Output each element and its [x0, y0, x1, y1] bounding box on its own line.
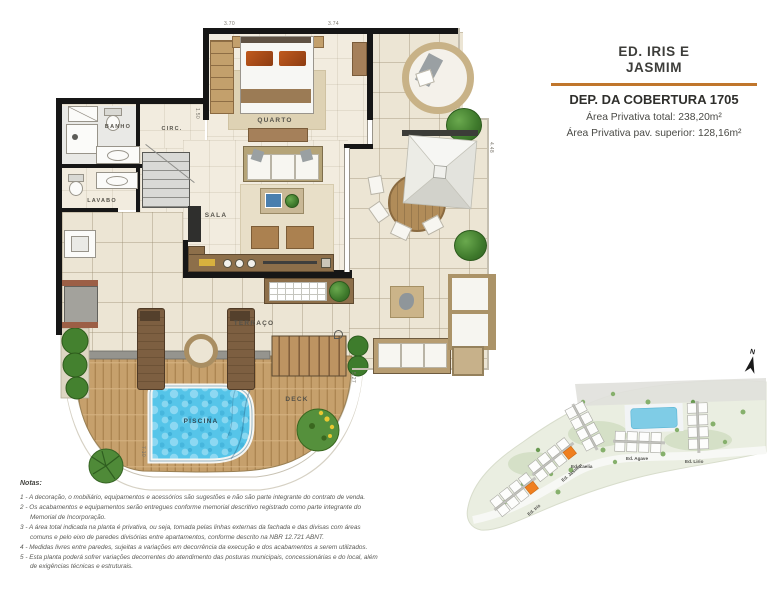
grill	[64, 286, 98, 324]
terrace-decor	[390, 286, 424, 318]
notes-heading: Notas:	[20, 480, 378, 487]
bed	[240, 36, 314, 114]
outdoor-sink-basin	[71, 236, 89, 252]
floorplan-page: QUARTO BANHO CIRC. LAVABO SALA TERRAÇO D…	[0, 0, 768, 614]
grill-brick-bottom	[62, 322, 98, 328]
sofa-cushion	[271, 154, 295, 180]
window-sala-right	[344, 148, 350, 272]
outdoor-armchair	[448, 274, 496, 314]
lavabo-sink-counter	[96, 172, 138, 189]
building-label-lirio: Ed. Lirio	[685, 459, 704, 464]
table-plant	[285, 194, 299, 208]
dimension-label: 3.74	[328, 21, 339, 27]
wall-lavabo-bottom	[56, 208, 118, 212]
bedroom-cabinet	[352, 42, 367, 76]
area-total: Área Privativa total: 238,20m²	[540, 110, 768, 125]
building-name-line1: ED. IRIS E	[540, 44, 768, 60]
banho-sink	[107, 150, 129, 161]
bed-headboard	[241, 37, 311, 43]
wardrobe	[210, 40, 234, 114]
outdoor-sofa	[373, 338, 451, 374]
garden-table-top	[269, 282, 327, 301]
burner	[247, 259, 256, 268]
notes-section: Notas: 1 - A decoração, o mobiliário, eq…	[20, 480, 378, 572]
round-daybed	[402, 42, 474, 114]
wall-banho-lavabo	[56, 164, 142, 168]
room-label-piscina: PISCINA	[168, 418, 234, 425]
bush	[63, 353, 87, 377]
room-label-banho: BANHO	[98, 124, 138, 130]
dining-chair	[368, 175, 385, 195]
cooktop	[199, 259, 215, 266]
bed-pillow	[246, 51, 273, 66]
banho-sink-counter	[96, 146, 140, 164]
lounger-headrest	[140, 311, 160, 321]
outdoor-sofa-cushion	[378, 343, 401, 368]
north-label: N	[749, 349, 755, 357]
table-art	[265, 193, 282, 208]
bed-runner	[241, 89, 311, 103]
deck-steps	[272, 336, 346, 376]
decor-object	[399, 293, 414, 310]
room-label-deck: DECK	[272, 396, 322, 403]
room-label-sala: SALA	[196, 212, 236, 219]
pouf	[251, 226, 279, 249]
garden-table-plant	[329, 281, 350, 302]
shower-head	[72, 134, 78, 140]
counter-sink	[263, 261, 317, 264]
dimension-label: 5.27	[350, 372, 356, 383]
bedroom-dresser	[248, 128, 308, 142]
burner	[235, 259, 244, 268]
dimension-label: 4.48	[488, 142, 494, 153]
side-table-round	[184, 334, 218, 368]
umbrella-canopy	[403, 135, 477, 209]
bush	[62, 328, 88, 354]
tree	[454, 230, 487, 261]
unit-title: DEP. DA COBERTURA 1705	[540, 92, 768, 107]
accent-rule	[551, 83, 757, 86]
garden-table	[264, 278, 354, 304]
bush	[348, 336, 368, 356]
wall-top	[203, 28, 458, 34]
shower	[66, 124, 98, 154]
north-arrow-icon: N	[745, 348, 760, 374]
wall-quarto-right	[367, 28, 373, 120]
counter-item	[321, 258, 331, 268]
lavabo-sink	[106, 176, 128, 186]
note-item: 3 - A área total indicada na planta é pr…	[20, 523, 378, 543]
building-cluster-agave	[613, 431, 666, 453]
bed-pillow	[279, 51, 306, 66]
coffee-table	[260, 188, 304, 214]
outdoor-sink	[64, 230, 96, 258]
outdoor-sofa-cushion	[424, 343, 447, 368]
building-name-line2: JASMIM	[540, 60, 768, 76]
room-label-terraco: TERRAÇO	[222, 320, 286, 327]
umbrella	[392, 124, 488, 216]
sofa	[243, 146, 323, 182]
pouf	[286, 226, 314, 249]
dimension-label: 3.70	[224, 21, 235, 27]
sun-lounger	[137, 308, 165, 390]
palm-plant	[89, 449, 123, 483]
area-upper: Área Privativa pav. superior: 128,16m²	[540, 126, 768, 141]
stairs	[142, 152, 190, 208]
wall-banho-top	[56, 98, 209, 104]
room-label-circ: CIRC.	[152, 126, 192, 132]
burner	[223, 259, 232, 268]
bush	[66, 377, 88, 399]
kitchen-counter	[188, 254, 334, 272]
note-item: 1 - A decoração, o mobiliário, equipamen…	[20, 493, 378, 503]
building-label-laelia: Ed. Laelia	[571, 464, 593, 469]
building-label-agave: Ed. Agave	[626, 456, 648, 461]
note-item: 5 - Esta planta poderá sofrer variações …	[20, 553, 378, 573]
site-plan: Ed. Iris Ed. Jasmim Ed. Laelia Ed. Agave…	[463, 342, 768, 552]
building-cluster-lirio	[687, 401, 709, 454]
deck-flower-bush	[297, 409, 339, 451]
room-label-lavabo: LAVABO	[80, 198, 124, 204]
dimension-label: 1.50	[194, 108, 200, 119]
umbrella-support-beam	[402, 130, 478, 136]
lavabo-toilet-bowl	[69, 181, 83, 196]
water-point-icon	[334, 330, 343, 339]
dimension-label: 7.10	[140, 446, 146, 457]
note-item: 4 - Medidas livres entre paredes, sujeit…	[20, 543, 378, 553]
site-pool	[631, 407, 678, 429]
room-label-quarto: QUARTO	[240, 117, 310, 124]
wall-left	[56, 98, 62, 335]
note-item: 2 - Os acabamentos e equipamentos serão …	[20, 503, 378, 523]
banho-shelf	[68, 106, 98, 122]
title-block: ED. IRIS E JASMIM DEP. DA COBERTURA 1705…	[540, 44, 768, 141]
outdoor-sofa-cushion	[401, 343, 424, 368]
wall-quarto-left	[203, 28, 209, 120]
